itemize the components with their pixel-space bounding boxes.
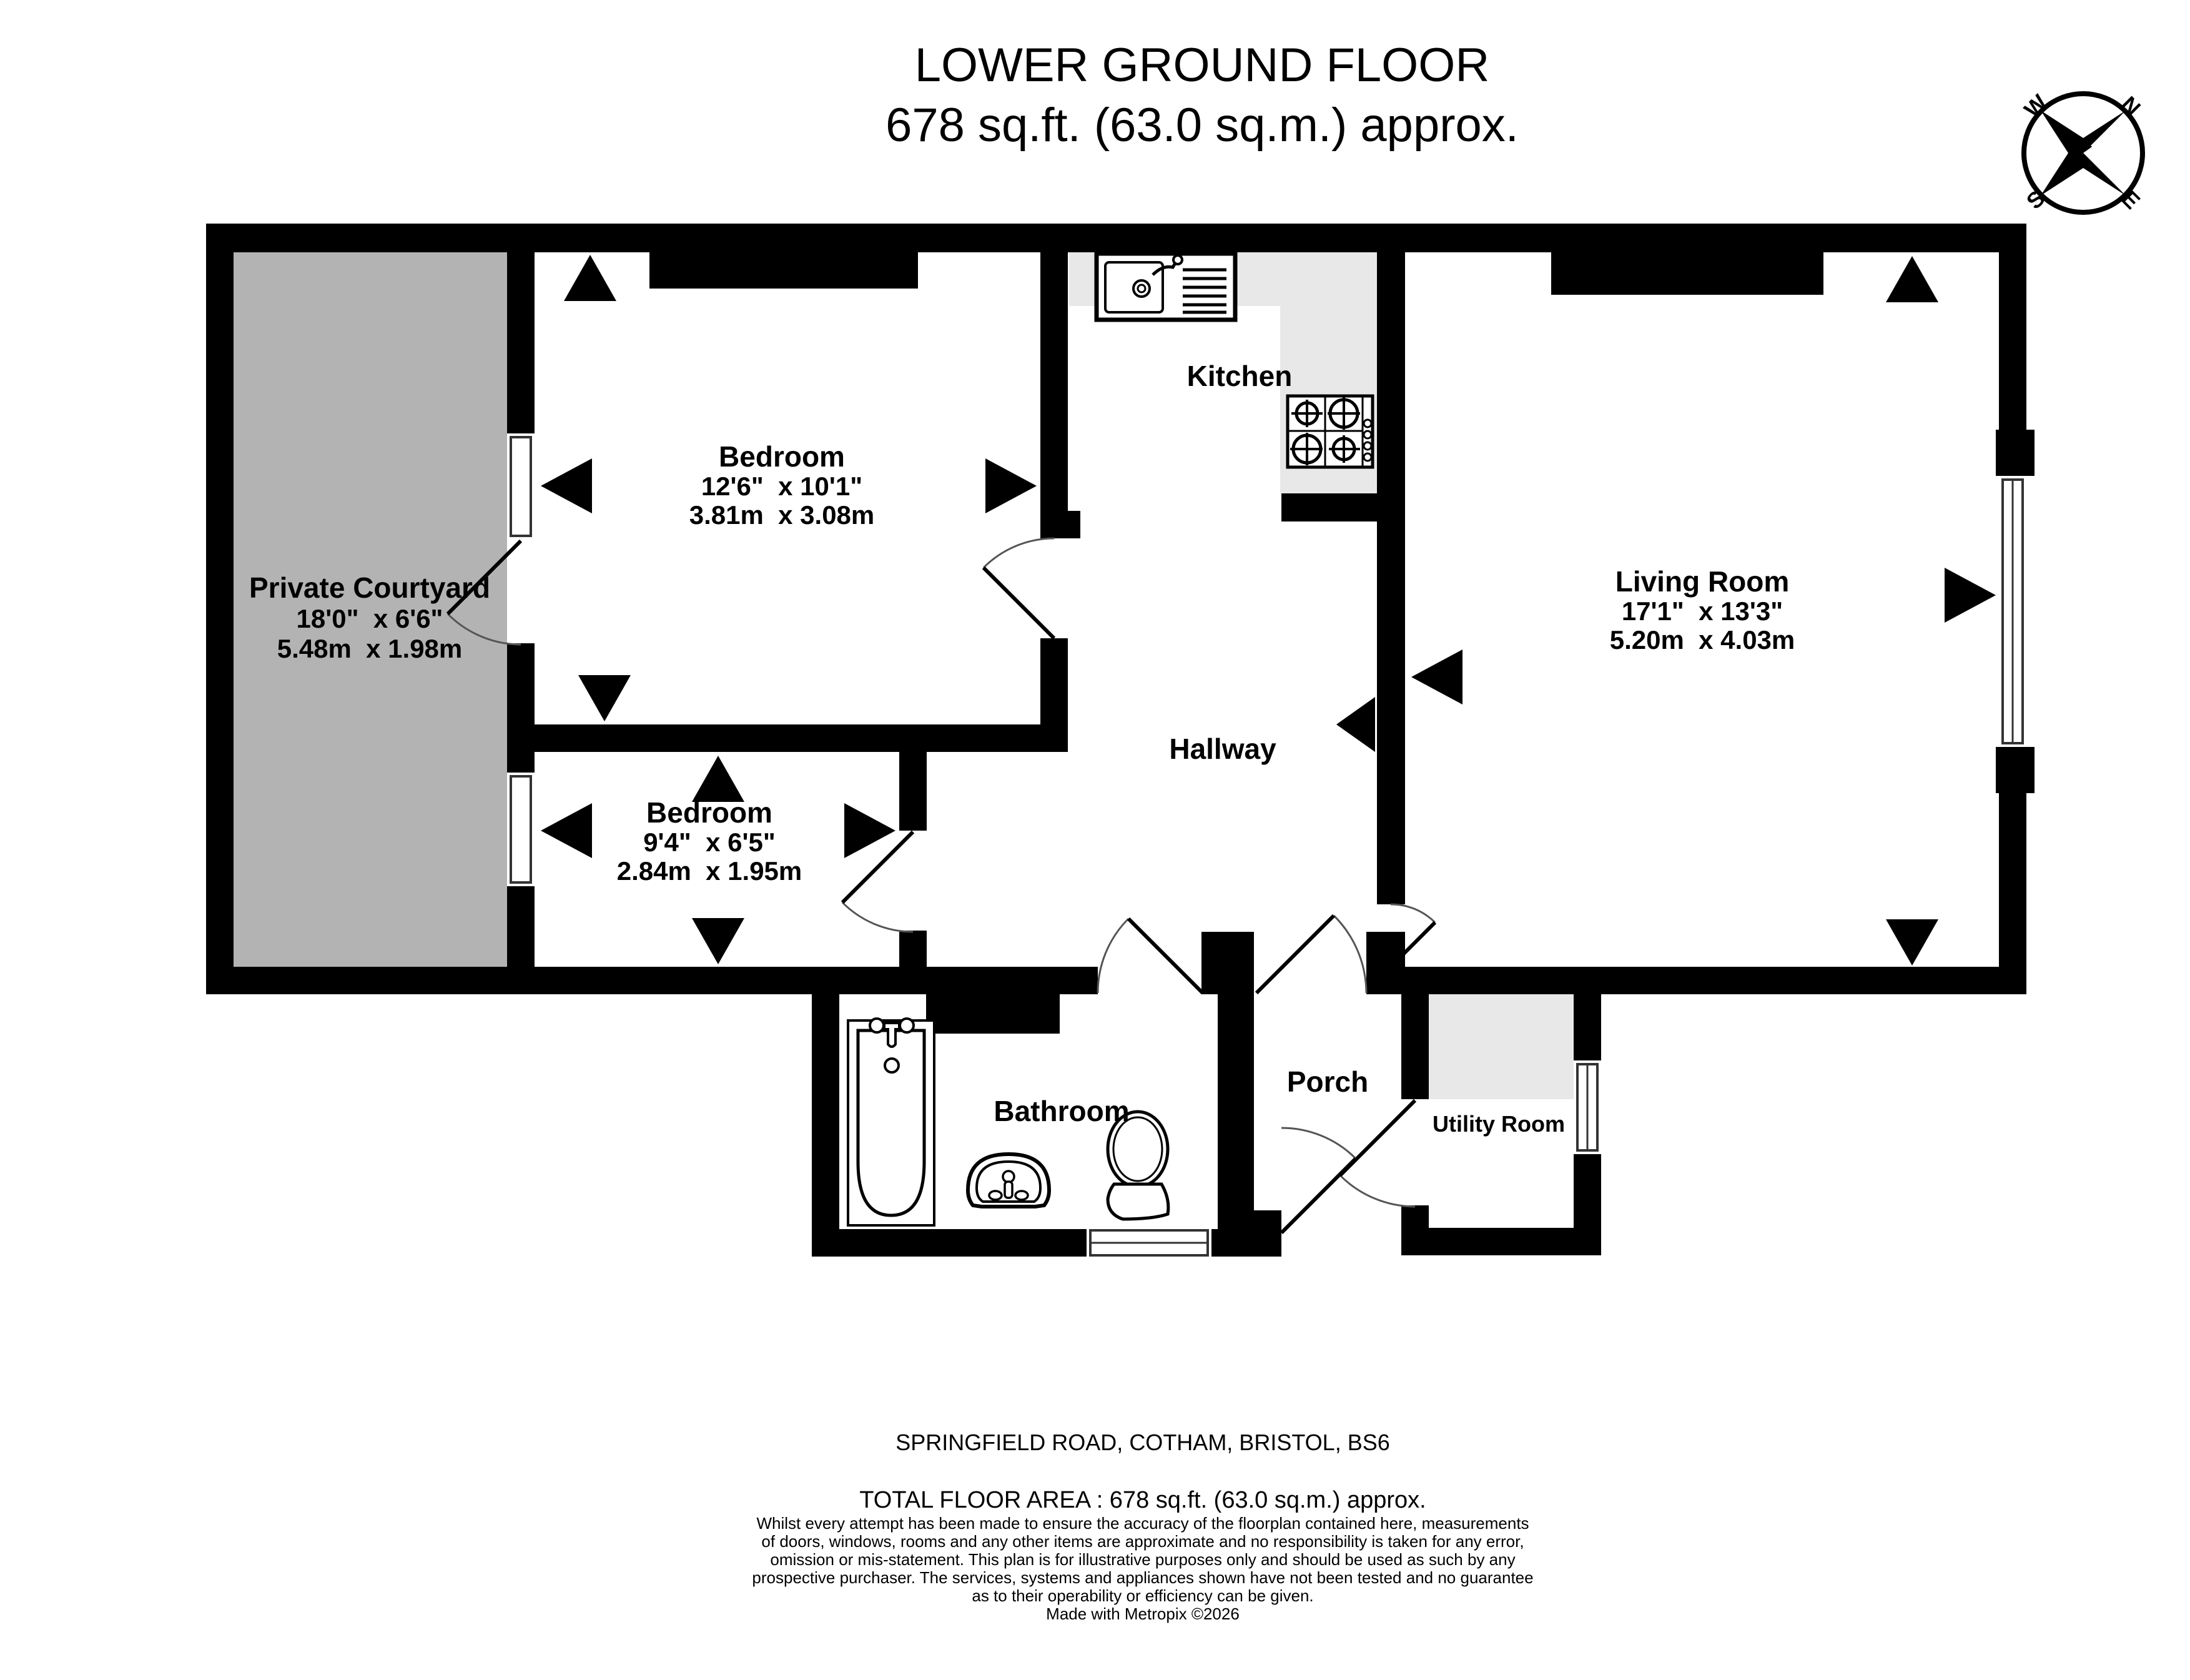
wall-bedroom2-right-b [899, 931, 927, 994]
wall-kitchen-bottom [1281, 493, 1405, 521]
wall-bedroom1-right-a [1040, 252, 1068, 538]
hob-icon [1288, 396, 1373, 467]
wall-bottom-left [206, 967, 1098, 994]
wall-utility-bottom [1401, 1228, 1601, 1255]
footer-credit: Made with Metropix ©2026 [1046, 1604, 1240, 1623]
bathroom-name: Bathroom [994, 1095, 1129, 1127]
title-block: LOWER GROUND FLOOR 678 sq.ft. (63.0 sq.m… [885, 39, 1519, 152]
compass-n: N [2116, 91, 2146, 121]
footer-block: SPRINGFIELD ROAD, COTHAM, BRISTOL, BS6 T… [752, 1430, 1533, 1623]
courtyard-imperial: 18'0" x 6'6" [297, 604, 443, 633]
wall-bathroom-porch-divider [1218, 994, 1254, 1257]
footer-address: SPRINGFIELD ROAD, COTHAM, BRISTOL, BS6 [895, 1430, 1390, 1455]
living-room-window [1999, 476, 2026, 747]
wall-living-right-a [1999, 252, 2026, 430]
bedroom1-window [507, 433, 535, 540]
courtyard-metric: 5.48m x 1.98m [277, 634, 463, 663]
arrow-left-bedroom2 [541, 803, 592, 858]
kitchen-name: Kitchen [1187, 360, 1293, 392]
wall-bedroom2-right-a [899, 752, 927, 831]
toilet-icon [1108, 1112, 1168, 1219]
wall-porch-utility-divider [1401, 994, 1429, 1099]
bedroom1-name: Bedroom [719, 440, 845, 473]
courtyard-name: Private Courtyard [249, 571, 490, 604]
kitchen-sink-icon [1097, 254, 1235, 320]
wall-bedroom1-right-b [1040, 638, 1068, 752]
compass-icon: N W S E [2019, 89, 2146, 214]
arrow-up-living [1886, 256, 1938, 302]
wall-window-block-bottom [1996, 747, 2035, 793]
bedroom1-door [984, 538, 1054, 638]
wall-stub-hall-center [1201, 932, 1254, 994]
arrow-left-living [1411, 650, 1462, 704]
arrow-right-bedroom2 [844, 803, 895, 858]
wall-courtyard-divider-b [507, 643, 535, 773]
floorplan-page: { "title": { "line1": "LOWER GROUND FLOO… [0, 0, 2190, 1680]
arrow-up-bedroom2 [692, 756, 744, 802]
disclaimer-line-5: as to their operability or efficiency ca… [972, 1586, 1313, 1605]
wall-left [206, 224, 234, 994]
arrow-right-living [1945, 568, 1996, 623]
wall-bathroom-top-chunk [926, 994, 1060, 1034]
utility-name: Utility Room [1433, 1111, 1565, 1137]
arrow-down-bedroom2 [692, 918, 744, 964]
bedroom2-imperial: 9'4" x 6'5" [643, 828, 776, 857]
utility-counter [1429, 994, 1574, 1099]
bedroom1-imperial: 12'6" x 10'1" [701, 472, 862, 501]
bathtub-icon [848, 1019, 934, 1225]
living-imperial: 17'1" x 13'3" [1622, 596, 1783, 626]
wall-living-left [1377, 252, 1405, 904]
floorplan-canvas: Private Courtyard 18'0" x 6'6" 5.48m x 1… [0, 0, 2190, 1680]
wall-courtyard-divider-c [507, 886, 535, 994]
footer-total-area: TOTAL FLOOR AREA : 678 sq.ft. (63.0 sq.m… [859, 1487, 1426, 1513]
wall-stub-hall-right [1366, 932, 1405, 994]
utility-window [1574, 1060, 1601, 1154]
bathroom-window [1087, 1225, 1211, 1260]
wall-bedrooms-divider [507, 724, 1068, 752]
bedroom2-window [507, 773, 535, 886]
wall-top [206, 224, 2026, 252]
living-chimney-breast [1551, 252, 1823, 295]
wall-courtyard-divider-a [507, 224, 535, 433]
bedroom2-name: Bedroom [646, 796, 772, 829]
hallway-name: Hallway [1169, 733, 1276, 765]
bedroom1-chimney-breast [649, 252, 918, 289]
disclaimer-line-1: Whilst every attempt has been made to en… [756, 1514, 1529, 1533]
basin-icon [968, 1154, 1049, 1207]
title-line1: LOWER GROUND FLOOR [915, 39, 1490, 92]
title-line2: 678 sq.ft. (63.0 sq.m.) approx. [885, 99, 1519, 152]
porch-inner-door [1256, 916, 1366, 993]
arrow-up-bedroom1 [564, 255, 616, 301]
wall-bottom-right [1366, 967, 2026, 994]
bathroom-door [1098, 919, 1203, 993]
porch-name: Porch [1287, 1065, 1368, 1098]
compass-e: E [2116, 185, 2145, 214]
arrow-down-bedroom1 [578, 675, 631, 721]
arrow-left-hallway [1336, 697, 1375, 752]
wall-porch-stub [1254, 1210, 1281, 1257]
wall-bathroom-left [812, 994, 839, 1257]
arrow-left-bedroom1 [541, 458, 592, 513]
wall-window-block-top [1996, 430, 2035, 476]
wall-living-right-b [1999, 793, 2026, 994]
disclaimer-line-2: of doors, windows, rooms and any other i… [761, 1532, 1524, 1551]
disclaimer-line-4: prospective purchaser. The services, sys… [752, 1568, 1533, 1587]
living-name: Living Room [1615, 565, 1790, 598]
bedroom1-metric: 3.81m x 3.08m [689, 500, 875, 530]
living-metric: 5.20m x 4.03m [1610, 625, 1795, 655]
arrow-right-bedroom1 [985, 458, 1037, 513]
disclaimer-line-3: omission or mis-statement. This plan is … [770, 1550, 1515, 1569]
bedroom2-metric: 2.84m x 1.95m [617, 856, 802, 886]
doors [448, 538, 1435, 1233]
wall-jamb-bedroom1 [1068, 511, 1080, 538]
arrow-down-living [1886, 919, 1938, 966]
